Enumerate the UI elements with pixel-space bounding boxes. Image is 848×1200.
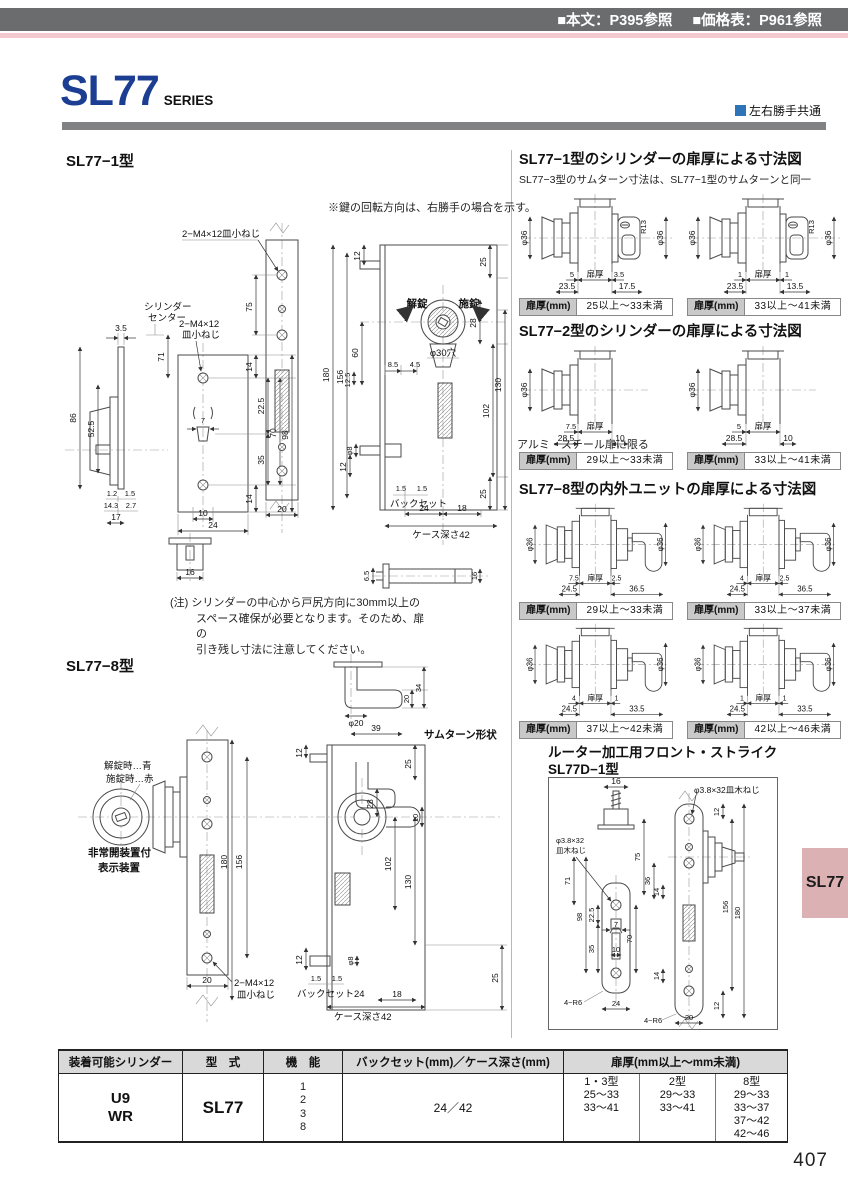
dim: 18 [392, 989, 402, 999]
dim: 10 [783, 433, 793, 443]
screw-label: 皿小ねじ [182, 330, 220, 341]
dim: R13 [807, 220, 816, 234]
cell-functions: 1 2 3 8 [263, 1074, 342, 1141]
door-thickness-diagram: φ36 φ36 R13 5 扉厚 3.5 23.5 17.5 [518, 190, 678, 298]
dim: 22.5 [256, 397, 266, 414]
dim: 24.5 [730, 585, 746, 594]
col-header-door-thickness: 扉厚(mm以上〜mm未満) [563, 1051, 788, 1074]
badge-label: 扉厚(mm) [520, 453, 577, 469]
dim: 7.5 [569, 576, 579, 583]
col-header-backset: バックセット(mm)／ケース深さ(mm) [342, 1051, 563, 1074]
dim: 34 [414, 684, 423, 692]
case-side-view [360, 245, 497, 510]
dim: 扉厚 [586, 269, 604, 279]
cell-door-thickness: 1・3型 25〜33 33〜41 2型 29〜33 33〜41 8型 29〜33… [563, 1074, 788, 1141]
group-value: 29〜33 [660, 1089, 695, 1102]
door-group-1-3: 1・3型 25〜33 33〜41 [564, 1074, 639, 1141]
dim: 14 [244, 494, 254, 504]
dim: φ36 [525, 537, 534, 551]
dim: 17 [111, 512, 121, 522]
dim: φ8 [345, 446, 354, 455]
dim: 2.7 [126, 501, 136, 510]
dim: φ36 [687, 382, 697, 397]
dim: 2.5 [612, 576, 622, 583]
col-header-function: 機 能 [263, 1051, 342, 1074]
dim: 3.5 [115, 323, 127, 333]
page-number: 407 [793, 1150, 828, 1172]
dim: 16 [470, 572, 479, 580]
dim: 4 [740, 576, 744, 583]
dim: 10 [411, 814, 420, 822]
dim: 12 [712, 808, 721, 816]
dim: 156 [234, 855, 244, 869]
dim: 14 [652, 888, 661, 896]
dim: 12 [712, 1002, 721, 1010]
dim: 28.5 [726, 433, 743, 443]
dim: φ36 [693, 537, 702, 551]
dim: 1.5 [311, 974, 321, 983]
dim: 75 [244, 302, 254, 312]
dim: φ36 [824, 537, 833, 551]
dim: 86 [68, 413, 78, 423]
function-no: 3 [300, 1108, 306, 1122]
page-header-bar: ■本文：P395参照 ■価格表：P961参照 [0, 8, 848, 31]
dim: 33.5 [629, 705, 645, 714]
badge-value: 33以上〜41未満 [745, 453, 840, 469]
door-thickness-badge: 扉厚(mm) 29以上〜33未満 [519, 602, 673, 620]
case-depth-label: ケース深さ42 [412, 530, 470, 541]
dim: 25 [490, 973, 500, 983]
dim: 1 [785, 270, 789, 279]
thumbturn-shape [334, 662, 402, 708]
dim: 20 [685, 1013, 693, 1022]
group-value: 33〜37 [734, 1102, 769, 1115]
cell-cylinders: U9 WR [58, 1074, 182, 1141]
dim: 33.5 [797, 705, 813, 714]
screw-label: 皿木ねじ [556, 845, 586, 855]
door-thickness-diagram: φ36 φ36 7.5 扉厚 2.5 24.5 36.5 [518, 500, 678, 600]
screw-label: 2−M4×12 [234, 978, 274, 989]
side-tab-label: SL77 [806, 874, 844, 892]
dim: 扉厚 [587, 573, 603, 583]
dim: 36.5 [629, 585, 645, 594]
col-header-cylinder: 装着可能シリンダー [58, 1051, 182, 1074]
right-sec1-heading: SL77−1型のシリンダーの扉厚による寸法図 [519, 148, 802, 169]
dim: φ8 [346, 956, 355, 965]
spec-table: 装着可能シリンダー 型 式 機 能 バックセット(mm)／ケース深さ(mm) 扉… [58, 1049, 788, 1143]
door-thickness-badge: 扉厚(mm) 33以上〜37未満 [687, 602, 841, 620]
dim: 扉厚 [755, 693, 771, 703]
screw-label: φ3.8×32 [556, 836, 584, 845]
badge-value: 37以上〜42未満 [577, 722, 672, 738]
series-suffix: SERIES [164, 93, 214, 108]
dim: 1 [740, 696, 744, 703]
dim: 扉厚 [755, 573, 771, 583]
dim: 扉厚 [587, 693, 603, 703]
badge-value: 29以上〜33未満 [577, 603, 672, 619]
badge-value: 25以上〜33未満 [577, 299, 672, 315]
side-tab: SL77 [802, 848, 848, 918]
router-heading-2: SL77D−1型 [548, 758, 619, 778]
door-thickness-badge: 扉厚(mm) 33以上〜41未満 [687, 298, 841, 316]
dim: 24 [208, 520, 218, 530]
dim: 20 [402, 695, 411, 703]
dim: 24.5 [730, 705, 746, 714]
router-drawing: 16 φ3.8×32皿木ねじ φ3.8×32 皿木ねじ [548, 777, 778, 1030]
series-title: SL77 SERIES [60, 70, 213, 113]
dim: 8.5 [388, 360, 398, 369]
dim: φ36 [525, 657, 534, 671]
note-line: (注) シリンダーの中心から戸尻方向に30mm以上の [170, 596, 430, 612]
group-value: 33〜41 [584, 1102, 619, 1115]
dim: 156 [721, 901, 730, 914]
door-thickness-diagram: φ36 φ36 1 扉厚 1 24.5 33.5 [686, 620, 846, 720]
dim: φ36 [656, 537, 665, 551]
door-group-2: 2型 29〜33 33〜41 [639, 1074, 716, 1141]
dim: φ36 [693, 657, 702, 671]
dim: 18 [457, 503, 467, 513]
dim: 24.5 [562, 585, 578, 594]
badge-label: 扉厚(mm) [688, 603, 745, 619]
dim: 180 [219, 855, 229, 869]
door-thickness-badge: 扉厚(mm) 37以上〜42未満 [519, 721, 673, 739]
dim: 12 [338, 462, 348, 472]
dim: 25 [403, 759, 413, 769]
dim: 1 [738, 270, 742, 279]
screw-label: 2−M4×12 [179, 319, 219, 330]
dim: 5 [570, 270, 574, 279]
group-value: 33〜41 [660, 1102, 695, 1115]
door-thickness-diagram: φ36 φ36 R13 1 扉厚 1 23.5 13.5 [686, 190, 846, 298]
corner-radius-label: 4−R6 [644, 1016, 662, 1025]
hole-label: φ30穴 [430, 347, 457, 359]
function-no: 1 [300, 1081, 306, 1095]
dim: 20 [202, 975, 212, 985]
dim: 24 [612, 999, 620, 1008]
badge-value: 29以上〜33未満 [577, 453, 672, 469]
badge-value: 33以上〜41未満 [745, 299, 840, 315]
right-sec8-heading: SL77−8型の内外ユニットの扉厚による寸法図 [519, 478, 816, 499]
dim: φ36 [656, 657, 665, 671]
dim: 1.5 [396, 484, 406, 493]
door-thickness-diagram: φ36 5 扉厚 28.5 10 [686, 342, 846, 450]
dim: 23.5 [727, 281, 744, 291]
function-no: 8 [300, 1121, 306, 1135]
dim: 25 [478, 257, 488, 267]
group-type: 1・3型 [584, 1076, 618, 1089]
dim: 71 [156, 352, 166, 362]
cell-model: SL77 [182, 1074, 263, 1141]
sl77-1-drawing: 3.5 86 52.5 1.2 1.5 14.3 2.7 17 7 シリンダー … [60, 215, 510, 590]
dim: 4 [572, 696, 576, 703]
dim: 60 [350, 348, 360, 358]
cylinder-center-label: シリンダー [144, 301, 192, 313]
cylinder-wr: WR [108, 1108, 133, 1126]
dim: 24 [419, 503, 429, 513]
badge-label: 扉厚(mm) [520, 603, 577, 619]
handing-text: 左右勝手共通 [749, 102, 821, 119]
dim: φ36 [519, 230, 529, 245]
dim: 2.5 [780, 576, 790, 583]
dim: 28 [468, 318, 478, 328]
dim: 4.5 [410, 360, 420, 369]
dim: 180 [321, 368, 331, 382]
dim: 10 [612, 945, 620, 954]
door-thickness-diagram: φ36 φ36 4 扉厚 2.5 24.5 36.5 [686, 500, 846, 600]
sec1-heading: SL77−1型 [66, 150, 134, 171]
dim: φ36 [687, 230, 697, 245]
dim: 70 [625, 935, 634, 943]
badge-label: 扉厚(mm) [688, 299, 745, 315]
col-header-model: 型 式 [182, 1051, 263, 1074]
dim: 7 [614, 920, 618, 929]
dim: 12 [352, 251, 362, 261]
dim: 1.5 [125, 489, 135, 498]
right-sec1-subtitle: SL77−3型のサムターン寸法は、SL77−1型のサムターンと同一 [519, 172, 811, 187]
badge-label: 扉厚(mm) [688, 453, 745, 469]
dim: 16 [185, 567, 195, 577]
rotation-note: ※鍵の回転方向は、右勝手の場合を示す。 [328, 199, 536, 215]
column-divider [511, 150, 512, 1038]
device-label: 表示装置 [97, 861, 140, 874]
door-thickness-diagram: φ36 7.5 扉厚 28.5 10 [518, 342, 678, 450]
dim: 75 [633, 853, 642, 861]
unlock-label: 解錠 [406, 297, 428, 310]
dim: 17.5 [619, 281, 636, 291]
dim: 35 [587, 945, 596, 953]
group-value: 37〜42 [734, 1115, 769, 1128]
dim: 7.5 [566, 422, 576, 431]
dim: φ36 [824, 657, 833, 671]
screw-label: φ3.8×32皿木ねじ [694, 785, 760, 795]
dim: 14.3 [104, 501, 119, 510]
dim: 13.5 [787, 281, 804, 291]
group-type: 2型 [669, 1076, 686, 1089]
indicator-note: 施錠時…赤 [106, 773, 154, 785]
dim: 3.5 [614, 270, 624, 279]
right-sec2-heading: SL77−2型のシリンダーの扉厚による寸法図 [519, 320, 802, 341]
dim: 1 [783, 696, 787, 703]
dim: 7 [201, 416, 205, 425]
dim: 1.5 [332, 974, 342, 983]
dim: 130 [493, 378, 503, 392]
dim: 102 [481, 404, 491, 418]
badge-label: 扉厚(mm) [688, 722, 745, 738]
dim: 20 [277, 504, 287, 514]
dim: 25 [478, 489, 488, 499]
case-depth-label: ケース深さ42 [334, 1012, 392, 1023]
dim: 24.5 [562, 705, 578, 714]
wood-screw-detail [598, 791, 634, 829]
dim: 12 [294, 955, 304, 965]
dim: 1 [615, 696, 619, 703]
dim: 23.5 [559, 281, 576, 291]
door-thickness-badge: 扉厚(mm) 29以上〜33未満 [519, 452, 673, 470]
dim: 扉厚 [586, 421, 604, 431]
pink-rule [0, 33, 848, 38]
badge-label: 扉厚(mm) [520, 299, 577, 315]
catalog-page: ■本文：P395参照 ■価格表：P961参照 SL77 SERIES 左右勝手共… [0, 0, 848, 1200]
dim: 52.5 [86, 420, 96, 437]
dim: φ20 [349, 718, 364, 728]
strike-plate-view [178, 355, 248, 512]
title-rule [62, 122, 826, 130]
badge-value: 33以上〜37未満 [745, 603, 840, 619]
door-thickness-badge: 扉厚(mm) 42以上〜46未満 [687, 721, 841, 739]
dim: φ36 [655, 230, 665, 245]
door-thickness-badge: 扉厚(mm) 25以上〜33未満 [519, 298, 673, 316]
backset-label: バックセット24 [297, 989, 365, 1000]
group-value: 42〜46 [734, 1128, 769, 1141]
badge-value: 42以上〜46未満 [745, 722, 840, 738]
dim: φ36 [519, 382, 529, 397]
dim: R13 [639, 220, 648, 234]
cylinder-side-view [90, 347, 124, 489]
door-group-8: 8型 29〜33 33〜37 37〜42 42〜46 [715, 1074, 787, 1141]
series-name: SL77 [60, 70, 159, 113]
screw-label: 皿小ねじ [237, 990, 275, 1001]
dim: 10 [198, 508, 208, 518]
badge-label: 扉厚(mm) [520, 722, 577, 738]
sec1-note: (注) シリンダーの中心から戸尻方向に30mm以上の スペース確保が必要となりま… [170, 596, 430, 658]
dim: φ36 [823, 230, 833, 245]
function-no: 2 [300, 1094, 306, 1108]
body-page-ref: ■本文：P395参照 [557, 9, 672, 30]
dim: 39 [371, 723, 381, 733]
dim: 98 [575, 913, 584, 921]
dim: 12.5 [343, 373, 352, 388]
price-page-ref: ■価格表：P961参照 [692, 9, 822, 30]
dim: 14 [244, 362, 254, 372]
dim: 12 [294, 748, 304, 758]
door-thickness-badge: 扉厚(mm) 33以上〜41未満 [687, 452, 841, 470]
dim: 1.2 [107, 489, 117, 498]
blue-square-icon [735, 105, 746, 116]
dim: 16 [611, 776, 621, 786]
dim: 14 [652, 972, 661, 980]
cell-backset: 24／42 [342, 1074, 563, 1141]
dim: 28 [365, 799, 375, 809]
spec-table-header-row: 装着可能シリンダー 型 式 機 能 バックセット(mm)／ケース深さ(mm) 扉… [58, 1051, 788, 1074]
dim: 1.5 [417, 484, 427, 493]
corner-radius-label: 4−R6 [564, 998, 582, 1007]
group-type: 8型 [743, 1076, 760, 1089]
dim: 22.5 [587, 908, 596, 923]
note-line: スペース確保が必要となります。そのため、扉の [170, 612, 430, 643]
group-value: 25〜33 [584, 1089, 619, 1102]
device-label: 非常開装置付 [88, 846, 151, 859]
spec-table-body-row: U9 WR SL77 1 2 3 8 24／42 1・3型 25〜33 33〜4… [58, 1074, 788, 1141]
screw-label: 2−M4×12皿小ねじ [182, 229, 260, 240]
dim: 6.5 [362, 571, 371, 581]
dim: 36 [643, 877, 652, 885]
sec2-note: アルミ・スチール扉に限る [517, 436, 649, 452]
dim: 102 [383, 857, 393, 871]
dim: 35 [256, 455, 266, 465]
dim: 130 [403, 875, 413, 889]
dim: 36.5 [797, 585, 813, 594]
indicator-note: 解錠時…青 [104, 760, 152, 772]
dim: 扉厚 [754, 269, 772, 279]
dim: 扉厚 [754, 421, 772, 431]
dim: 180 [733, 907, 742, 920]
dim: 5 [737, 422, 741, 431]
door-thickness-diagram: φ36 φ36 4 扉厚 1 24.5 33.5 [518, 620, 678, 720]
thumbturn-label: サムターン形状 [424, 728, 497, 741]
sl77-8-drawing: 20 34 φ20 39 サムターン形状 解錠時…青 施錠時…赤 非常開装置付 … [60, 650, 510, 1035]
handing-note: 左右勝手共通 [735, 102, 821, 119]
group-value: 29〜33 [734, 1089, 769, 1102]
dim: 71 [563, 877, 572, 885]
cylinder-u9: U9 [111, 1090, 130, 1108]
